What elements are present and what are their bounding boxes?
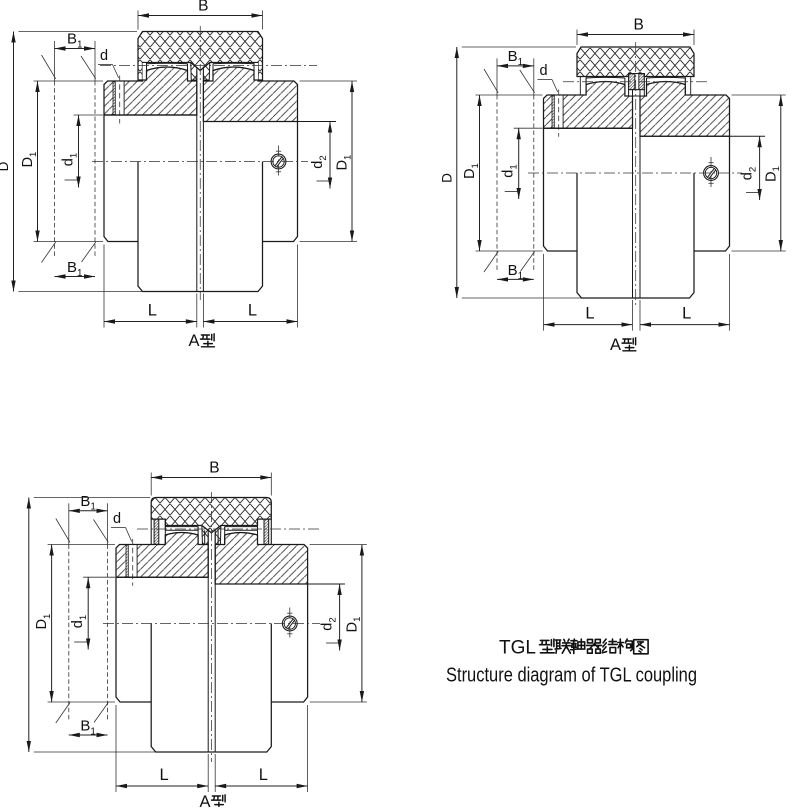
svg-text:A: A: [199, 793, 210, 807]
svg-text:L: L: [248, 302, 257, 320]
svg-text:L: L: [682, 305, 691, 323]
svg-text:B: B: [209, 459, 219, 476]
svg-text:A: A: [188, 332, 199, 350]
svg-text:B: B: [634, 16, 644, 33]
svg-text:Structure diagram of TGL coupl: Structure diagram of TGL coupling: [446, 664, 697, 687]
svg-text:L: L: [160, 766, 169, 784]
svg-text:TGL: TGL: [499, 638, 536, 659]
svg-text:d: d: [100, 48, 108, 64]
svg-text:D: D: [0, 161, 11, 171]
svg-text:L: L: [585, 305, 594, 323]
svg-text:A: A: [610, 336, 621, 354]
svg-text:B: B: [198, 0, 208, 14]
svg-text:d: d: [539, 63, 547, 79]
svg-text:L: L: [148, 302, 157, 320]
svg-text:L: L: [259, 766, 268, 784]
svg-text:d: d: [113, 511, 121, 527]
svg-text:D: D: [439, 173, 454, 183]
